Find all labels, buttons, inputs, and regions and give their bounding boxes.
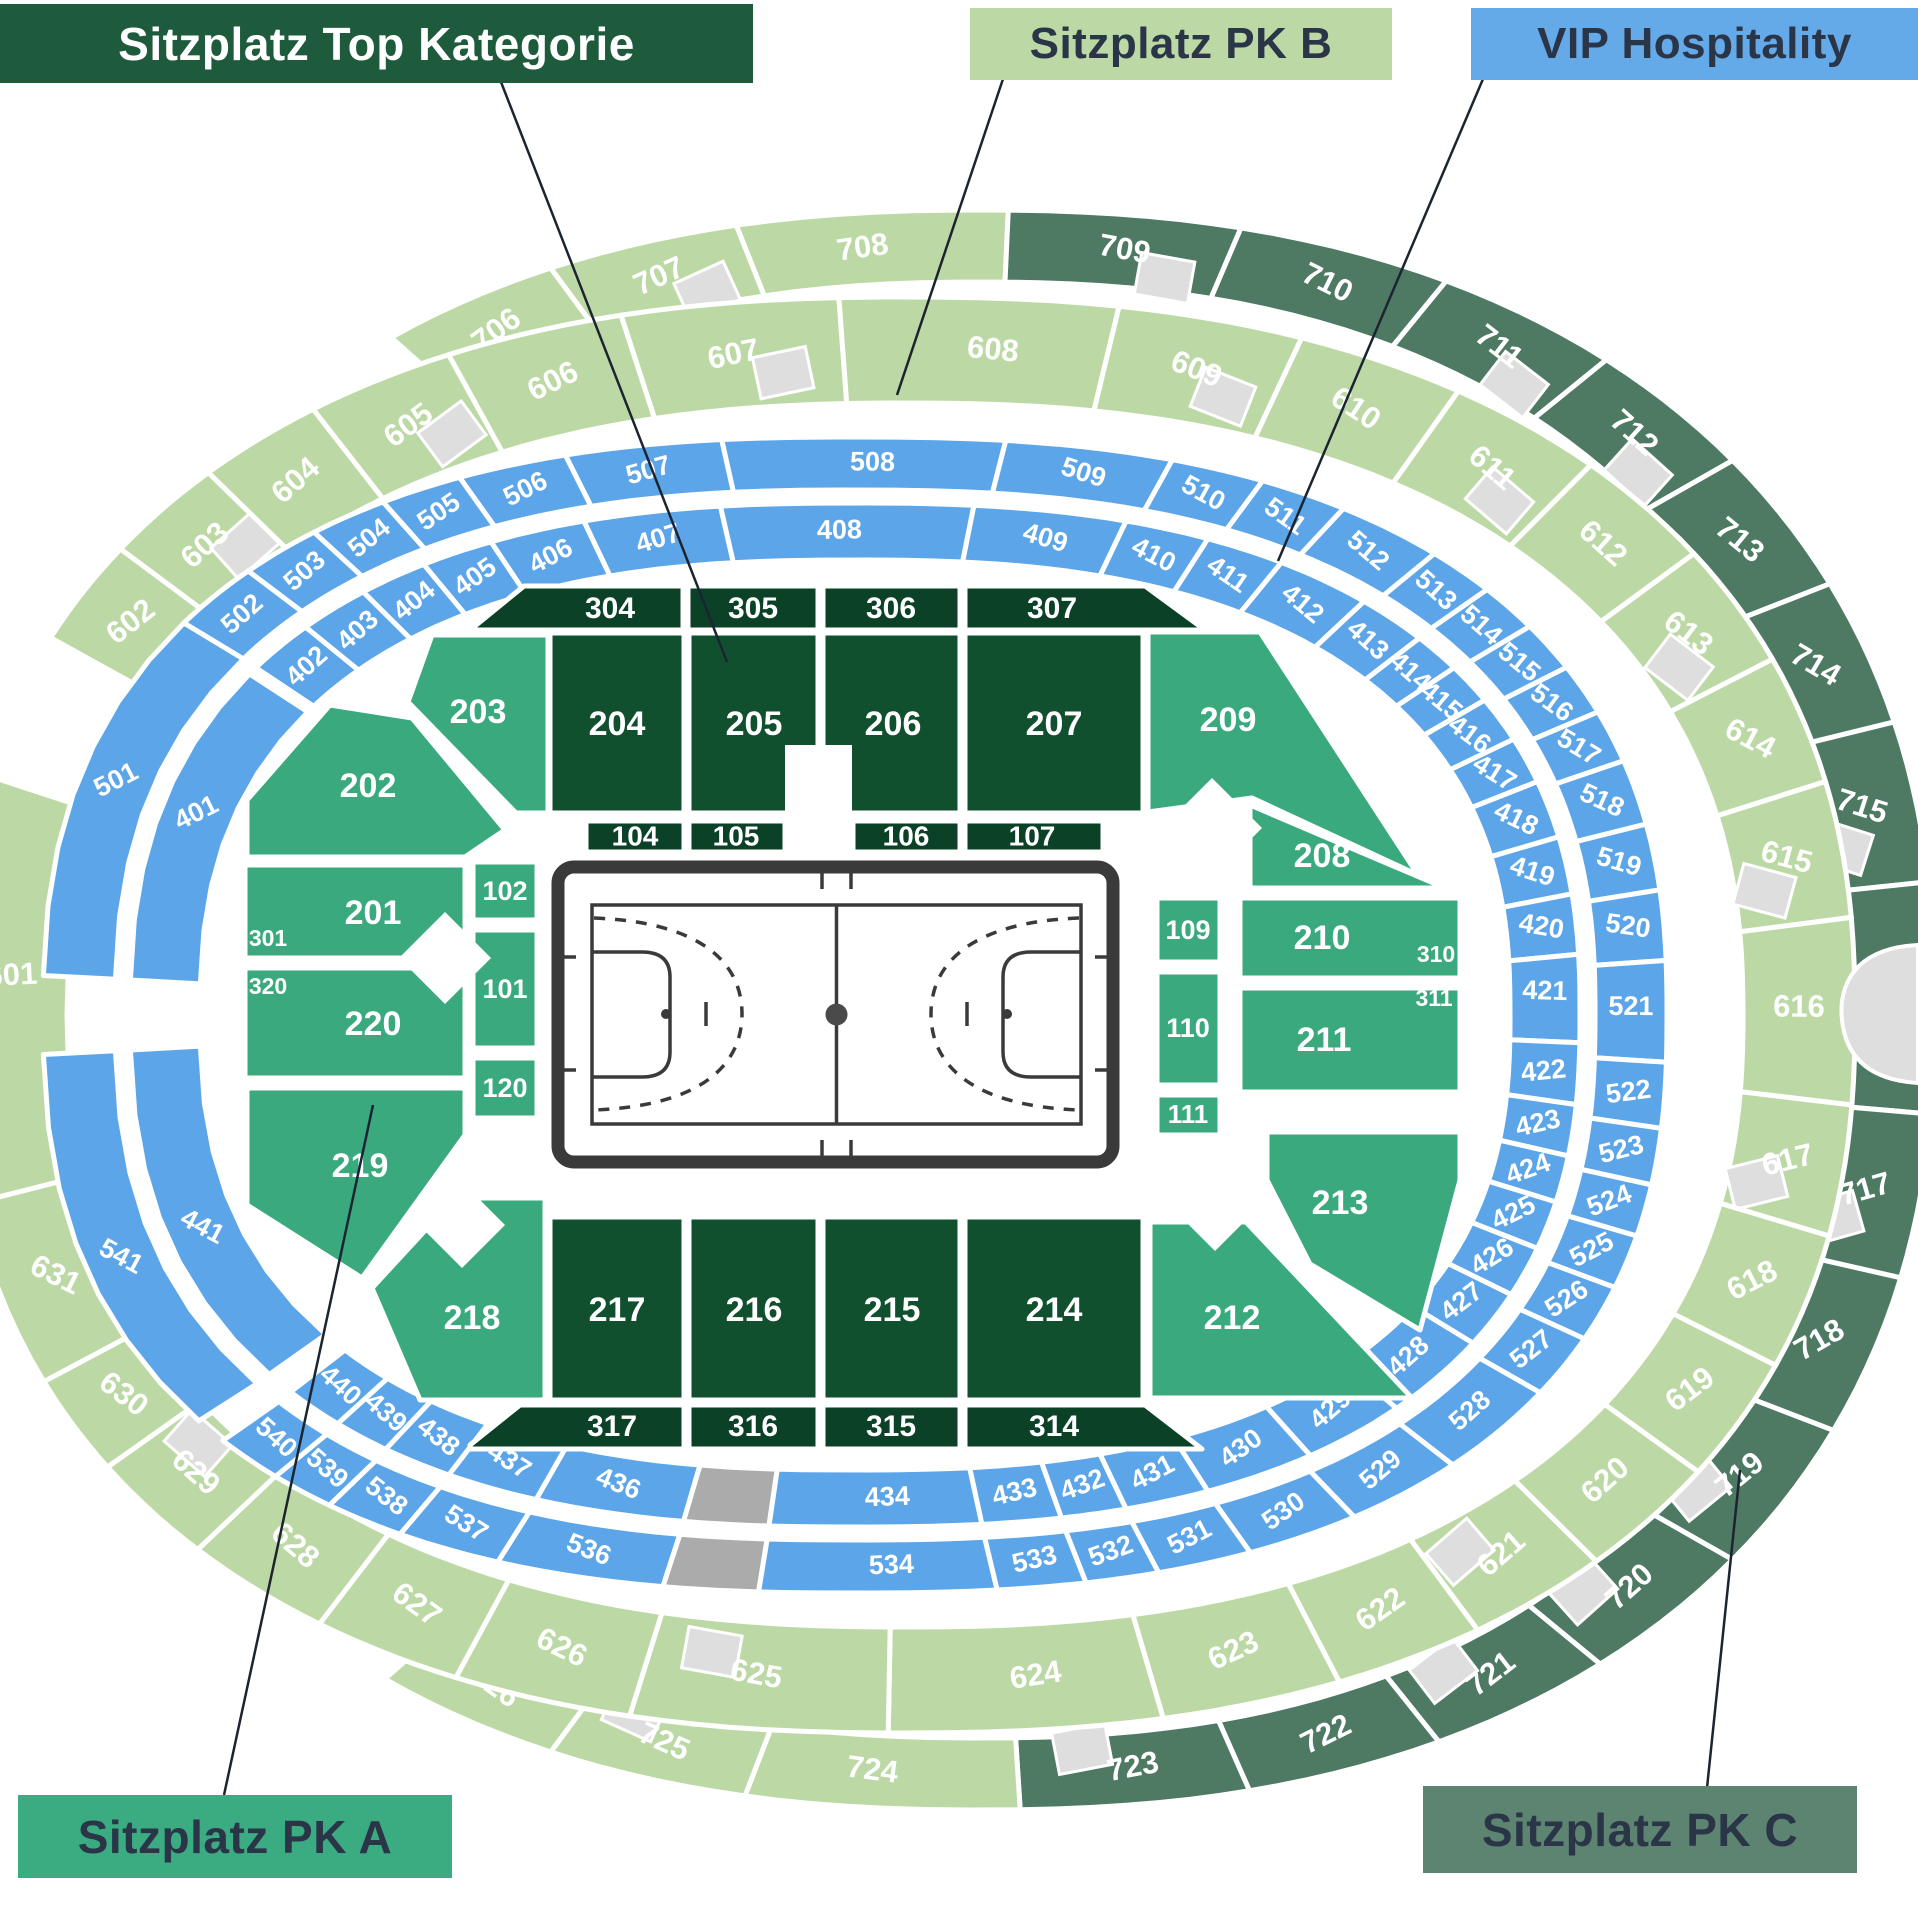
- section-111[interactable]: 111: [1157, 1095, 1220, 1135]
- section-724[interactable]: 724: [745, 1725, 1020, 1810]
- section-211[interactable]: 211: [1240, 988, 1460, 1092]
- section-204[interactable]: 204: [550, 633, 684, 813]
- section-105[interactable]: 105: [689, 820, 785, 852]
- handball-court: [558, 867, 1113, 1162]
- arena-seating-map-page: { "title": "Arena seating map", "colors"…: [0, 0, 1918, 1918]
- section-616[interactable]: 616: [1740, 917, 1855, 1105]
- section-608[interactable]: 608: [839, 297, 1119, 411]
- section-305[interactable]: 305: [688, 586, 818, 630]
- section-315[interactable]: 315: [823, 1405, 960, 1449]
- section-508[interactable]: 508: [722, 437, 1006, 493]
- section-709[interactable]: 709: [1005, 210, 1241, 303]
- section-120[interactable]: 120: [473, 1058, 537, 1118]
- stadium-map: 7067077087097107117127137147157167177187…: [0, 0, 1918, 1918]
- section-507[interactable]: 507: [565, 440, 733, 507]
- section-314[interactable]: 314: [965, 1405, 1202, 1449]
- section-533[interactable]: 533: [985, 1531, 1087, 1590]
- section-215[interactable]: 215: [823, 1217, 960, 1400]
- legend-pkc: Sitzplatz PK C: [1423, 1786, 1857, 1873]
- section-217[interactable]: 217: [550, 1217, 684, 1400]
- section-708[interactable]: 708: [736, 210, 1008, 296]
- legend-pkb: Sitzplatz PK B: [970, 8, 1392, 80]
- tunnel-notch: [785, 745, 852, 872]
- legend-vip: VIP Hospitality: [1471, 8, 1918, 80]
- legend-pka: Sitzplatz PK A: [18, 1795, 452, 1878]
- legend-topkat: Sitzplatz Top Kategorie: [0, 4, 753, 83]
- section-534[interactable]: 534: [759, 1537, 998, 1593]
- section-107[interactable]: 107: [965, 820, 1103, 852]
- section-407[interactable]: 407: [584, 506, 734, 576]
- section-624[interactable]: 624: [888, 1615, 1163, 1733]
- entrance-block: [1134, 253, 1195, 304]
- section-521[interactable]: 521: [1594, 960, 1667, 1062]
- section-207[interactable]: 207: [965, 633, 1143, 813]
- entrance-block: [752, 347, 814, 399]
- section-102[interactable]: 102: [473, 862, 537, 920]
- section-109[interactable]: 109: [1157, 898, 1220, 962]
- section-104[interactable]: 104: [586, 820, 684, 852]
- section-434[interactable]: 434: [769, 1468, 982, 1527]
- section-306[interactable]: 306: [823, 586, 960, 630]
- section-509[interactable]: 509: [992, 440, 1172, 510]
- section-409[interactable]: 409: [963, 505, 1127, 576]
- section-317[interactable]: 317: [470, 1405, 684, 1449]
- section-110[interactable]: 110: [1157, 972, 1220, 1085]
- section-408[interactable]: 408: [720, 503, 974, 563]
- section-106[interactable]: 106: [853, 820, 960, 852]
- entrance-block: [682, 1626, 743, 1677]
- section-214[interactable]: 214: [965, 1217, 1143, 1400]
- section-216[interactable]: 216: [689, 1217, 818, 1400]
- section-723[interactable]: 723: [1016, 1721, 1250, 1810]
- section-316[interactable]: 316: [689, 1405, 818, 1449]
- section-625[interactable]: 625: [630, 1613, 891, 1733]
- section-520[interactable]: 520: [1589, 890, 1667, 966]
- section-420[interactable]: 420: [1503, 894, 1579, 961]
- section-421[interactable]: 421: [1509, 954, 1580, 1043]
- section-210[interactable]: 210: [1240, 898, 1460, 978]
- section-607[interactable]: 607: [621, 298, 847, 419]
- section-101[interactable]: 101: [473, 930, 537, 1048]
